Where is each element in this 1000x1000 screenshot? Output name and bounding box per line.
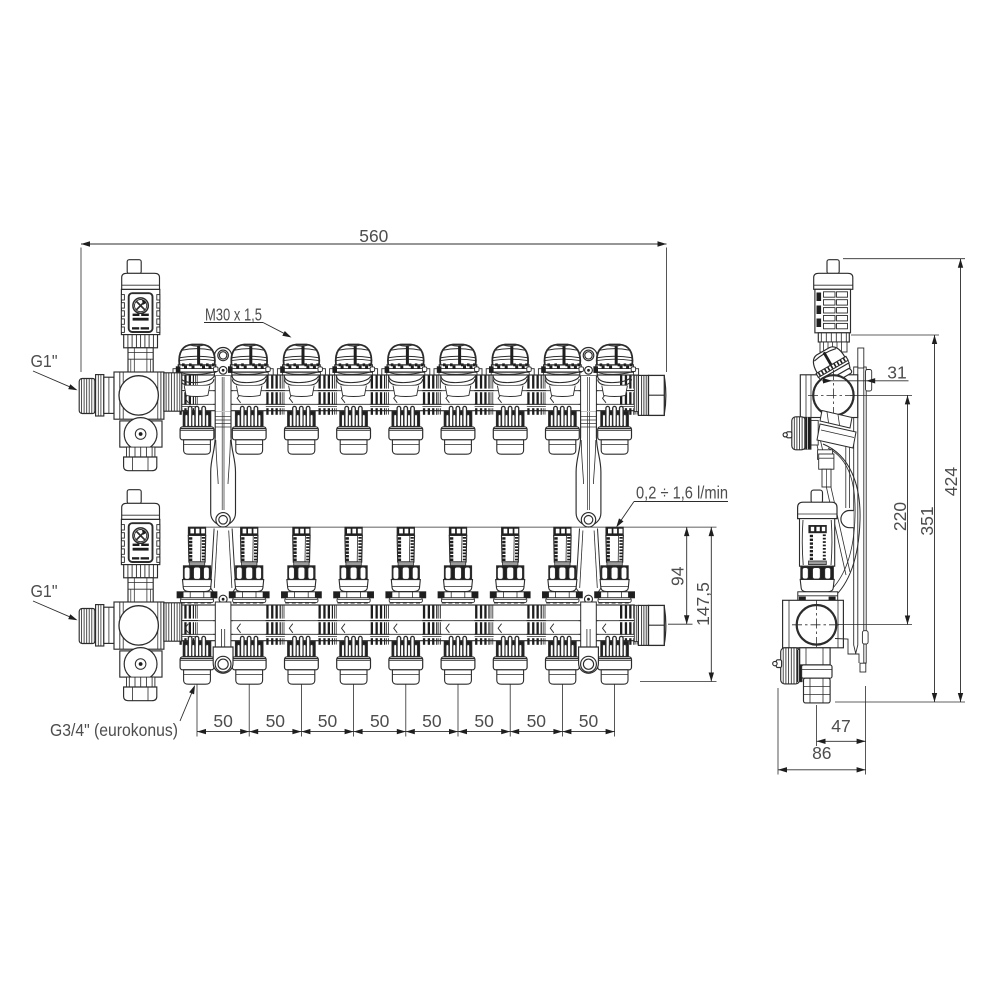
svg-text:0,2 ÷ 1,6 l/min: 0,2 ÷ 1,6 l/min	[636, 483, 728, 503]
svg-text:50: 50	[213, 711, 233, 731]
svg-text:47: 47	[831, 716, 850, 736]
svg-text:31: 31	[887, 362, 906, 382]
svg-text:50: 50	[422, 711, 442, 731]
svg-text:G1": G1"	[31, 351, 58, 371]
svg-text:220: 220	[890, 502, 910, 531]
svg-text:50: 50	[474, 711, 494, 731]
svg-text:147,5: 147,5	[693, 582, 713, 626]
svg-text:86: 86	[812, 743, 831, 763]
svg-text:G1": G1"	[31, 581, 58, 601]
svg-text:M30 x 1,5: M30 x 1,5	[205, 304, 262, 324]
svg-text:94: 94	[668, 566, 688, 586]
svg-text:50: 50	[266, 711, 286, 731]
svg-text:50: 50	[370, 711, 390, 731]
svg-text:424: 424	[941, 467, 961, 496]
svg-text:50: 50	[527, 711, 547, 731]
svg-text:50: 50	[579, 711, 599, 731]
svg-text:560: 560	[359, 226, 388, 246]
svg-text:G3/4" (eurokonus): G3/4" (eurokonus)	[50, 720, 178, 740]
svg-text:50: 50	[318, 711, 338, 731]
svg-text:351: 351	[917, 506, 937, 535]
